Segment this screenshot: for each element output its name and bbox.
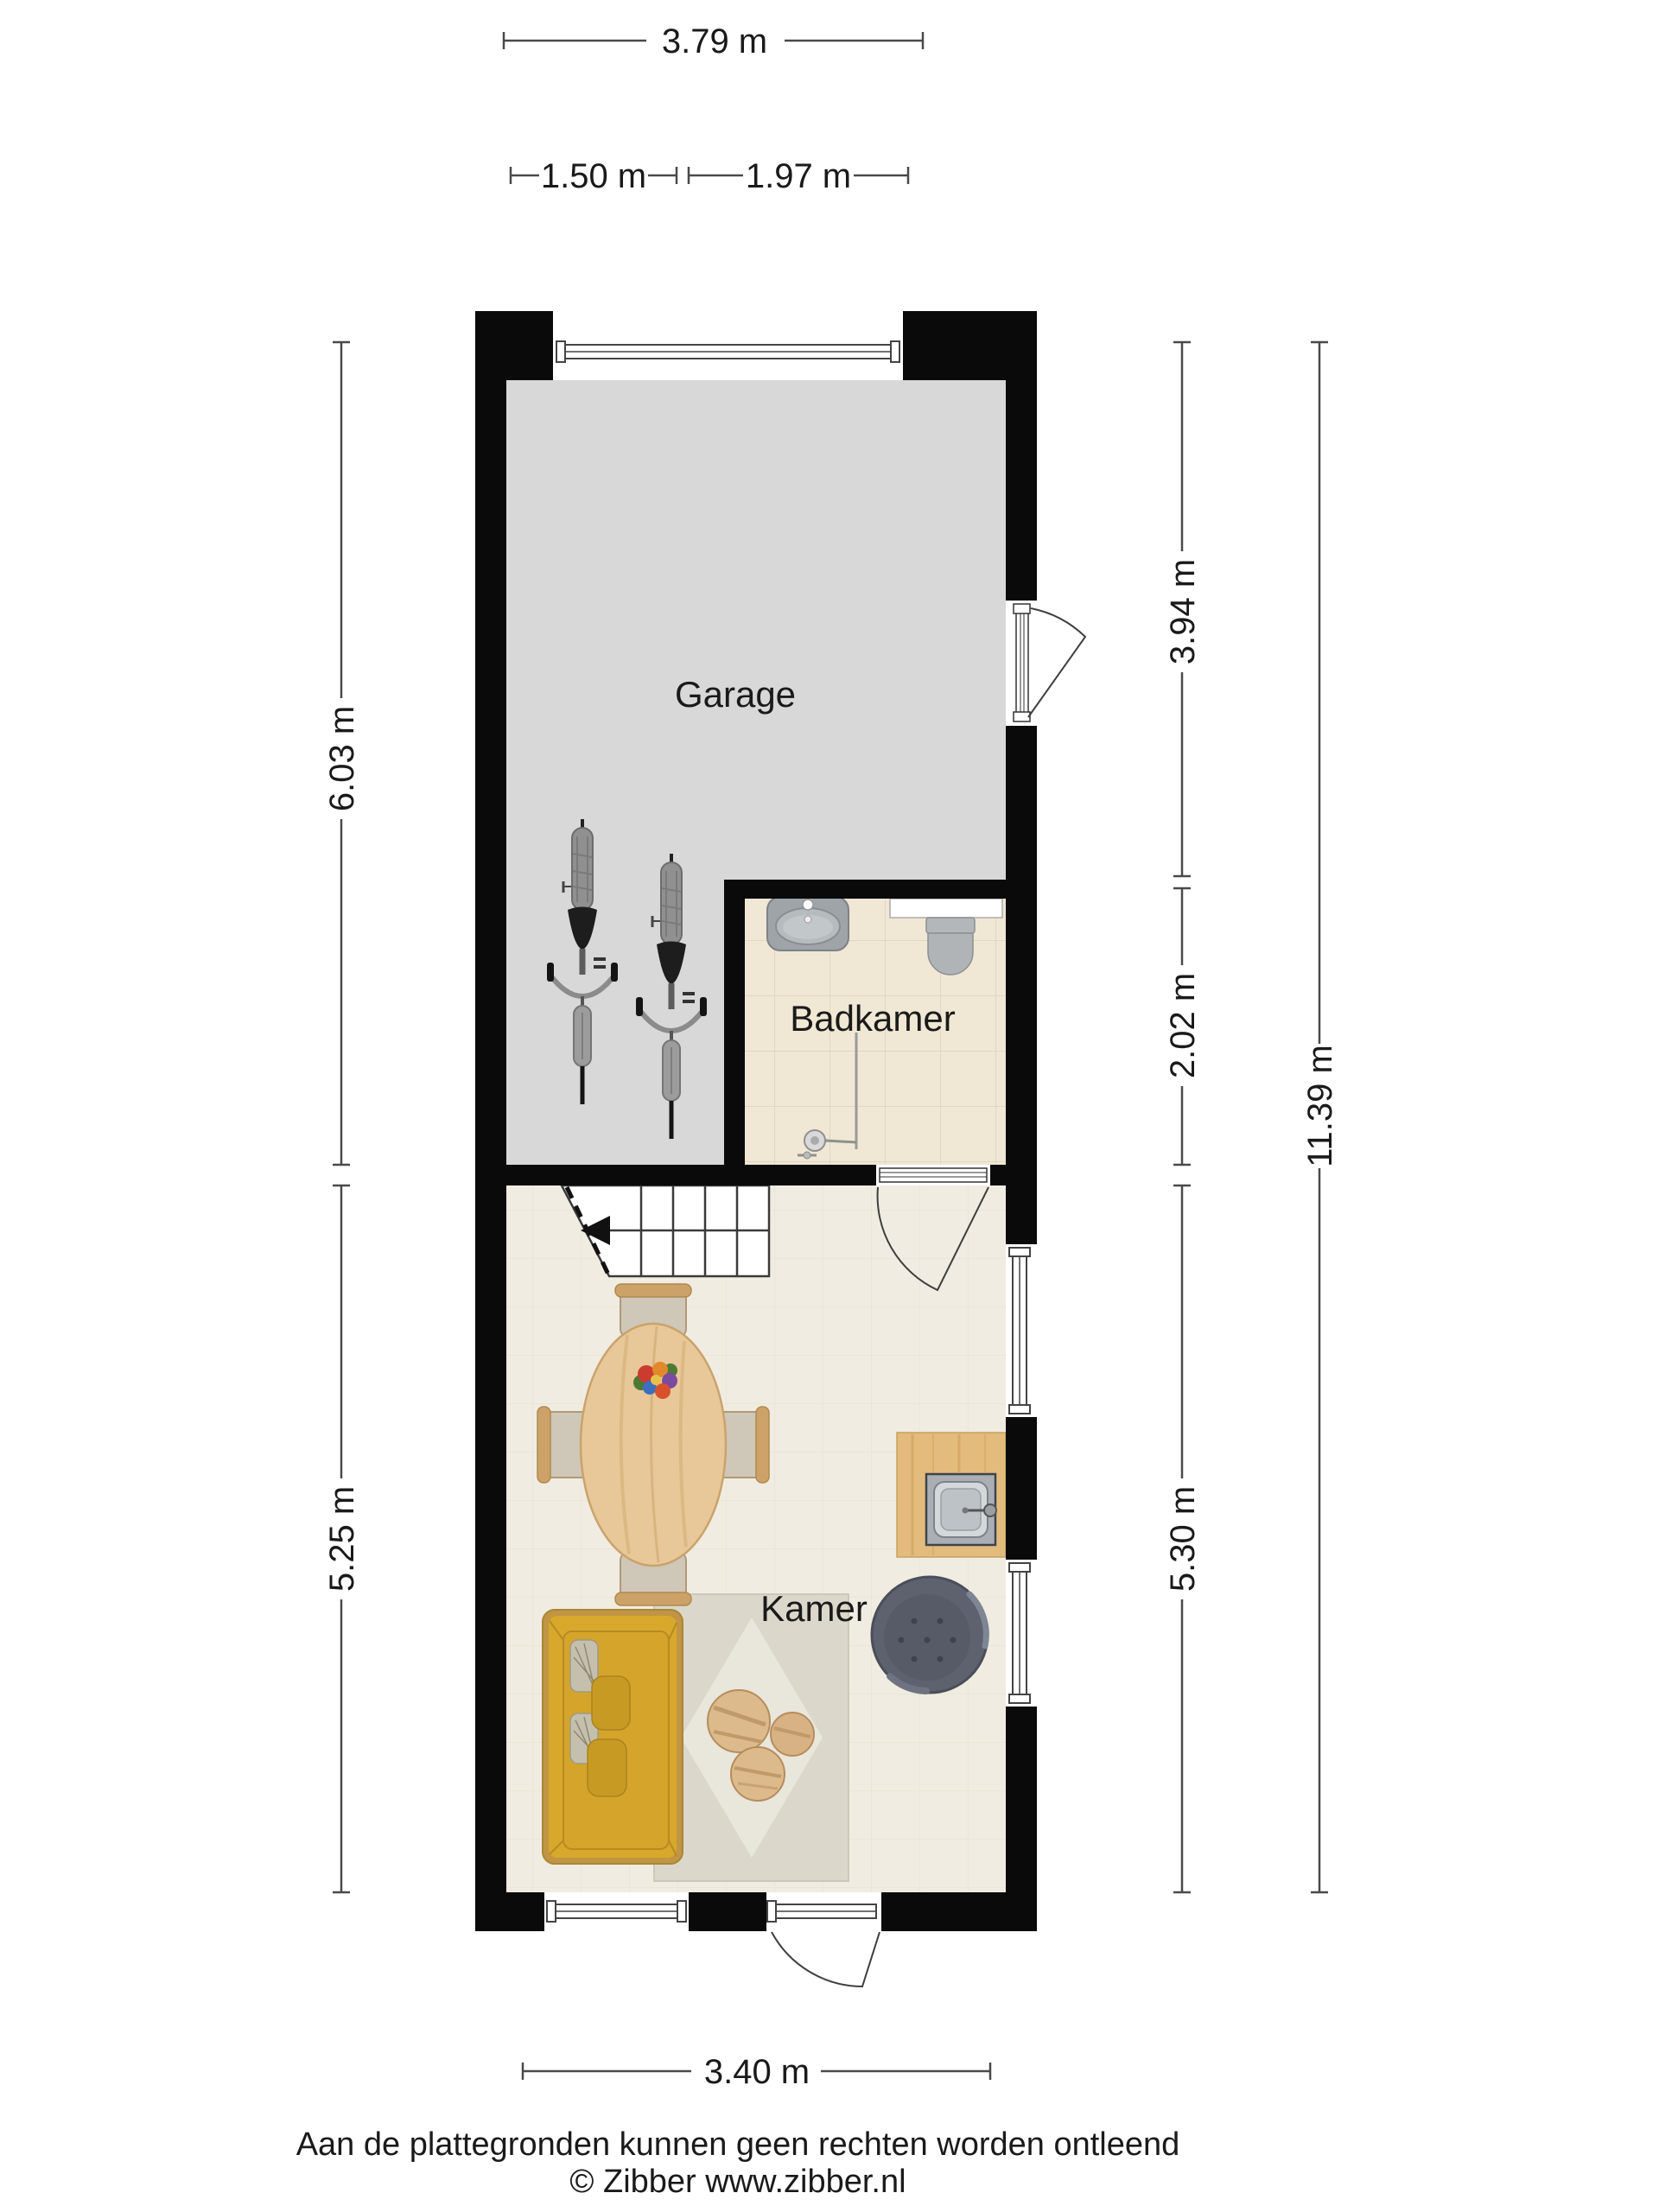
dimension-left-upper: 6.03 m [323, 342, 361, 1165]
svg-text:1.50 m: 1.50 m [541, 157, 646, 195]
dimension-top-left: 1.50 m [511, 157, 677, 195]
svg-text:3.40 m: 3.40 m [704, 2053, 810, 2091]
kitchen-sink [926, 1474, 996, 1545]
dimension-right-lower: 5.30 m [1164, 1185, 1202, 1892]
armchair [872, 1577, 988, 1693]
kamer-window-upper [1006, 1244, 1037, 1417]
entry-door [766, 1892, 881, 1986]
svg-text:1.97 m: 1.97 m [746, 157, 851, 195]
dimension-right-total: 11.39 m [1301, 342, 1339, 1892]
kamer-label: Kamer [760, 1588, 868, 1629]
svg-text:5.30 m: 5.30 m [1164, 1486, 1202, 1592]
toilet [926, 918, 975, 975]
dimension-left-lower: 5.25 m [323, 1185, 361, 1892]
svg-text:5.25 m: 5.25 m [323, 1486, 361, 1592]
svg-text:11.39 m: 11.39 m [1301, 1045, 1339, 1167]
dimension-top-right: 1.97 m [689, 157, 908, 195]
kamer-window-lower [1006, 1560, 1037, 1707]
badkamer-label: Badkamer [790, 998, 955, 1039]
dimension-bottom-width: 3.40 m [523, 2053, 990, 2091]
dining-table [581, 1324, 726, 1566]
bathroom-niche [890, 899, 1002, 918]
dimension-right-upper: 3.94 m [1164, 342, 1202, 876]
garage-label: Garage [675, 674, 796, 715]
floorplan-drawing: Garage Badkamer Kamer 3.79 m 1.50 m 1.97… [0, 0, 1659, 2212]
bathroom-sink [767, 897, 849, 950]
bottom-window [544, 1892, 689, 1931]
svg-text:6.03 m: 6.03 m [323, 706, 361, 811]
garage-side-door [1006, 601, 1085, 726]
dimension-right-middle: 2.02 m [1164, 888, 1202, 1165]
garage-door-window [553, 311, 903, 380]
footer-copyright: © Zibber www.zibber.nl [569, 2164, 906, 2200]
footer-disclaimer: Aan de plattegronden kunnen geen rechten… [296, 2126, 1180, 2163]
sofa [543, 1610, 683, 1864]
floorplan-page: Garage Badkamer Kamer 3.79 m 1.50 m 1.97… [0, 0, 1659, 2212]
svg-text:2.02 m: 2.02 m [1164, 973, 1202, 1078]
svg-text:3.79 m: 3.79 m [662, 22, 767, 60]
svg-text:3.94 m: 3.94 m [1164, 559, 1202, 664]
dimension-top-width: 3.79 m [504, 22, 923, 60]
